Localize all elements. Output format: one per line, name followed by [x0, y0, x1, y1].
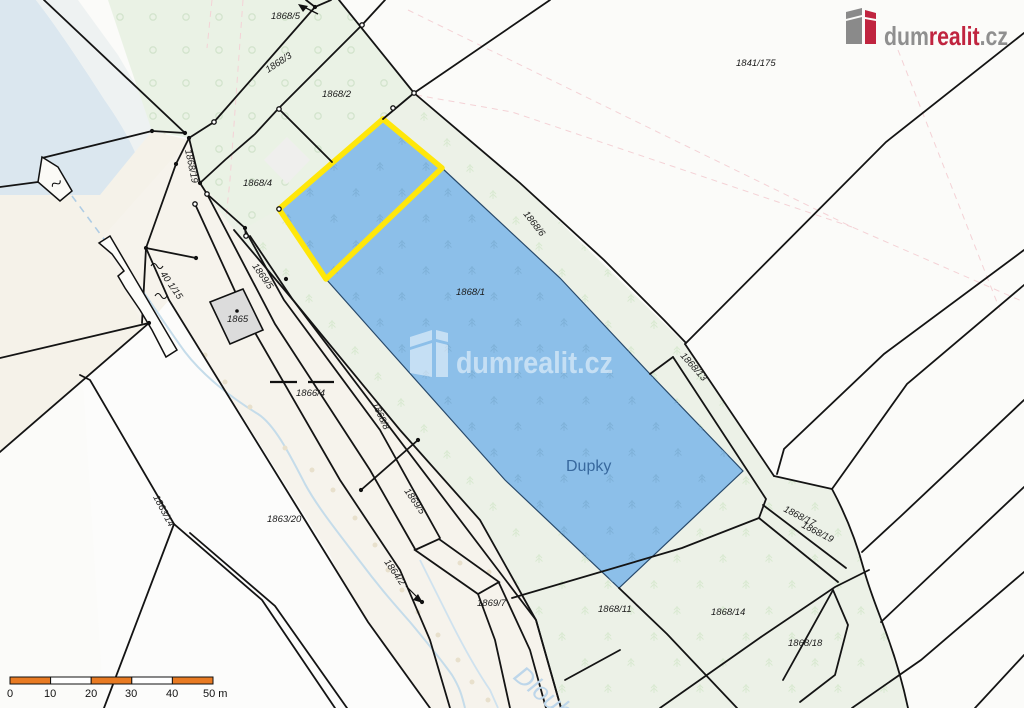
svg-text:40: 40: [166, 688, 178, 700]
svg-text:dumrealit.cz: dumrealit.cz: [884, 21, 1008, 51]
svg-text:1868/5: 1868/5: [271, 11, 301, 22]
svg-text:dumrealit.cz: dumrealit.cz: [456, 345, 613, 380]
svg-text:10: 10: [44, 688, 56, 700]
svg-text:1868/2: 1868/2: [322, 89, 352, 100]
svg-text:1863/20: 1863/20: [267, 514, 302, 525]
svg-text:1869/7: 1869/7: [477, 598, 507, 609]
svg-text:30: 30: [125, 688, 137, 700]
svg-text:1865: 1865: [227, 314, 249, 325]
svg-text:0: 0: [7, 688, 13, 700]
svg-text:1866/4: 1866/4: [296, 388, 325, 399]
svg-text:20: 20: [85, 688, 97, 700]
svg-text:1868/18: 1868/18: [788, 638, 823, 649]
svg-text:1868/11: 1868/11: [598, 604, 632, 615]
svg-text:1868/14: 1868/14: [711, 607, 745, 618]
svg-text:1841/175: 1841/175: [736, 58, 776, 69]
svg-text:1868/1: 1868/1: [456, 287, 485, 298]
svg-text:Dupky: Dupky: [566, 458, 611, 475]
svg-text:50 m: 50 m: [203, 688, 227, 700]
svg-text:1868/4: 1868/4: [243, 178, 272, 189]
